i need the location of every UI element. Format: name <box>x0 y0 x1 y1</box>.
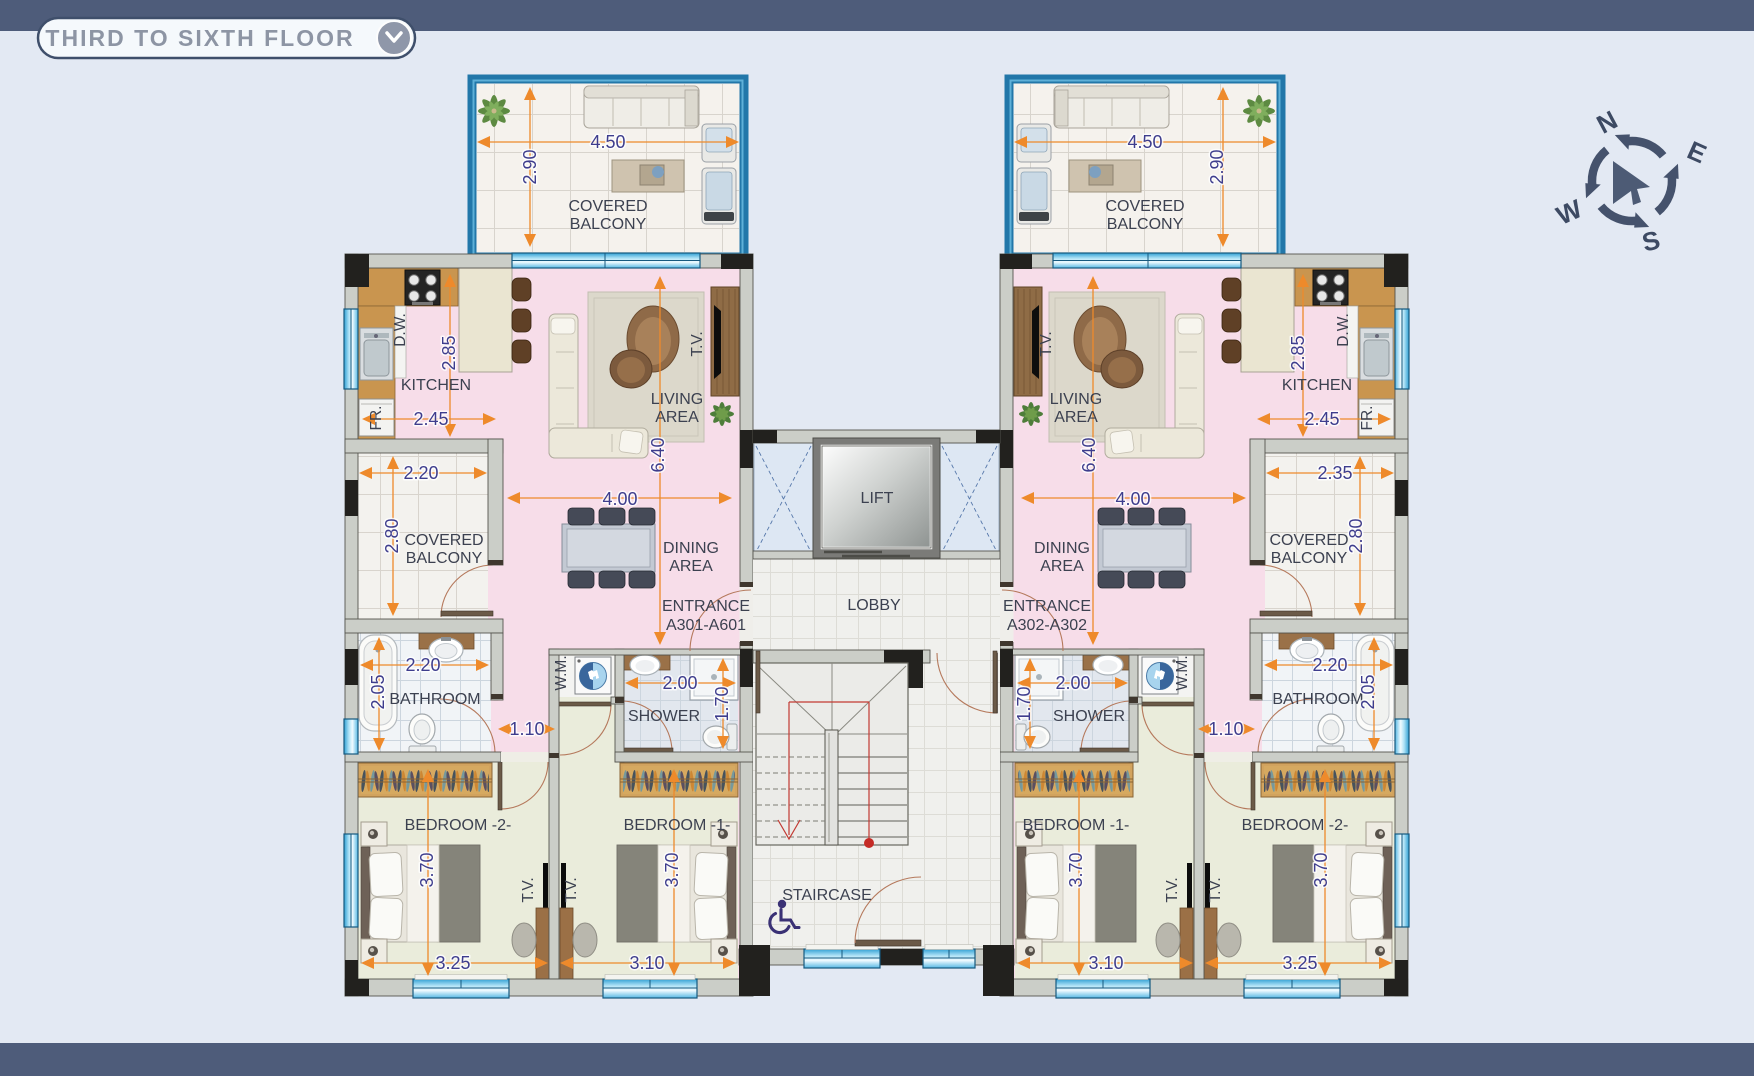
svg-text:2.45: 2.45 <box>413 409 448 429</box>
svg-text:LIVING: LIVING <box>1050 391 1102 408</box>
svg-text:1.70: 1.70 <box>1014 686 1034 721</box>
svg-text:AREA: AREA <box>655 409 699 426</box>
svg-text:BATHROOM: BATHROOM <box>1272 691 1363 708</box>
svg-text:COVERED: COVERED <box>404 532 483 549</box>
svg-text:4.50: 4.50 <box>1127 132 1162 152</box>
svg-text:LIFT: LIFT <box>861 490 894 507</box>
svg-text:2.90: 2.90 <box>520 149 540 184</box>
svg-text:T.V.: T.V. <box>563 877 580 902</box>
svg-text:3.25: 3.25 <box>1282 953 1317 973</box>
svg-text:2.05: 2.05 <box>368 674 388 709</box>
svg-text:LOBBY: LOBBY <box>847 597 901 614</box>
svg-text:1.10: 1.10 <box>1208 719 1243 739</box>
svg-text:ENTRANCE: ENTRANCE <box>662 598 750 615</box>
svg-text:AREA: AREA <box>1040 558 1084 575</box>
svg-text:BEDROOM -2-: BEDROOM -2- <box>1242 817 1349 834</box>
svg-text:FR.: FR. <box>1359 406 1376 431</box>
svg-text:BEDROOM -1-: BEDROOM -1- <box>1023 817 1130 834</box>
svg-text:DINING: DINING <box>1034 540 1090 557</box>
svg-text:T.V.: T.V. <box>520 877 537 902</box>
svg-text:2.45: 2.45 <box>1304 409 1339 429</box>
svg-text:COVERED: COVERED <box>1269 532 1348 549</box>
svg-text:1.10: 1.10 <box>509 719 544 739</box>
svg-text:2.20: 2.20 <box>403 463 438 483</box>
svg-text:2.00: 2.00 <box>662 673 697 693</box>
svg-text:KITCHEN: KITCHEN <box>1282 377 1352 394</box>
svg-text:4.00: 4.00 <box>602 489 637 509</box>
svg-text:2.80: 2.80 <box>382 518 402 553</box>
svg-text:COVERED: COVERED <box>568 198 647 215</box>
svg-text:3.25: 3.25 <box>435 953 470 973</box>
svg-text:LIVING: LIVING <box>651 391 703 408</box>
svg-text:BEDROOM -2-: BEDROOM -2- <box>405 817 512 834</box>
svg-text:2.85: 2.85 <box>1288 335 1308 370</box>
svg-text:THIRD TO SIXTH FLOOR: THIRD TO SIXTH FLOOR <box>45 25 354 51</box>
svg-text:2.90: 2.90 <box>1207 149 1227 184</box>
svg-text:6.40: 6.40 <box>1079 437 1099 472</box>
svg-text:3.70: 3.70 <box>662 852 682 887</box>
svg-text:ENTRANCE: ENTRANCE <box>1003 598 1091 615</box>
svg-text:3.10: 3.10 <box>1088 953 1123 973</box>
svg-text:2.80: 2.80 <box>1346 518 1366 553</box>
svg-text:COVERED: COVERED <box>1105 198 1184 215</box>
svg-text:T.V.: T.V. <box>1164 877 1181 902</box>
svg-text:BALCONY: BALCONY <box>1107 216 1184 233</box>
svg-text:A302-A302: A302-A302 <box>1007 617 1087 634</box>
svg-text:D.W.: D.W. <box>392 313 409 347</box>
svg-text:A301-A601: A301-A601 <box>666 617 746 634</box>
svg-text:T.V.: T.V. <box>1038 331 1055 356</box>
svg-text:SHOWER: SHOWER <box>1053 708 1125 725</box>
svg-text:AREA: AREA <box>1054 409 1098 426</box>
svg-text:BALCONY: BALCONY <box>1271 550 1348 567</box>
svg-text:4.00: 4.00 <box>1115 489 1150 509</box>
svg-text:2.20: 2.20 <box>405 655 440 675</box>
svg-text:4.50: 4.50 <box>590 132 625 152</box>
svg-text:3.70: 3.70 <box>1066 852 1086 887</box>
svg-text:W.M.: W.M. <box>1174 655 1191 690</box>
svg-text:6.40: 6.40 <box>648 437 668 472</box>
svg-text:STAIRCASE: STAIRCASE <box>782 887 872 904</box>
svg-text:KITCHEN: KITCHEN <box>401 377 471 394</box>
svg-text:2.20: 2.20 <box>1312 655 1347 675</box>
svg-text:3.10: 3.10 <box>629 953 664 973</box>
svg-text:BALCONY: BALCONY <box>406 550 483 567</box>
svg-text:2.35: 2.35 <box>1317 463 1352 483</box>
svg-text:D.W.: D.W. <box>1335 313 1352 347</box>
svg-text:1.70: 1.70 <box>712 686 732 721</box>
svg-text:AREA: AREA <box>669 558 713 575</box>
svg-text:BALCONY: BALCONY <box>570 216 647 233</box>
svg-text:3.70: 3.70 <box>1311 852 1331 887</box>
svg-text:DINING: DINING <box>663 540 719 557</box>
svg-text:2.85: 2.85 <box>439 335 459 370</box>
svg-text:3.70: 3.70 <box>417 852 437 887</box>
svg-text:SHOWER: SHOWER <box>628 708 700 725</box>
svg-text:T.V.: T.V. <box>689 331 706 356</box>
svg-text:FR.: FR. <box>368 406 385 431</box>
svg-text:T.V.: T.V. <box>1207 877 1224 902</box>
svg-text:BATHROOM: BATHROOM <box>389 691 480 708</box>
svg-text:2.05: 2.05 <box>1358 674 1378 709</box>
svg-text:2.00: 2.00 <box>1055 673 1090 693</box>
svg-text:BEDROOM -1-: BEDROOM -1- <box>624 817 731 834</box>
svg-text:W.M.: W.M. <box>553 655 570 690</box>
